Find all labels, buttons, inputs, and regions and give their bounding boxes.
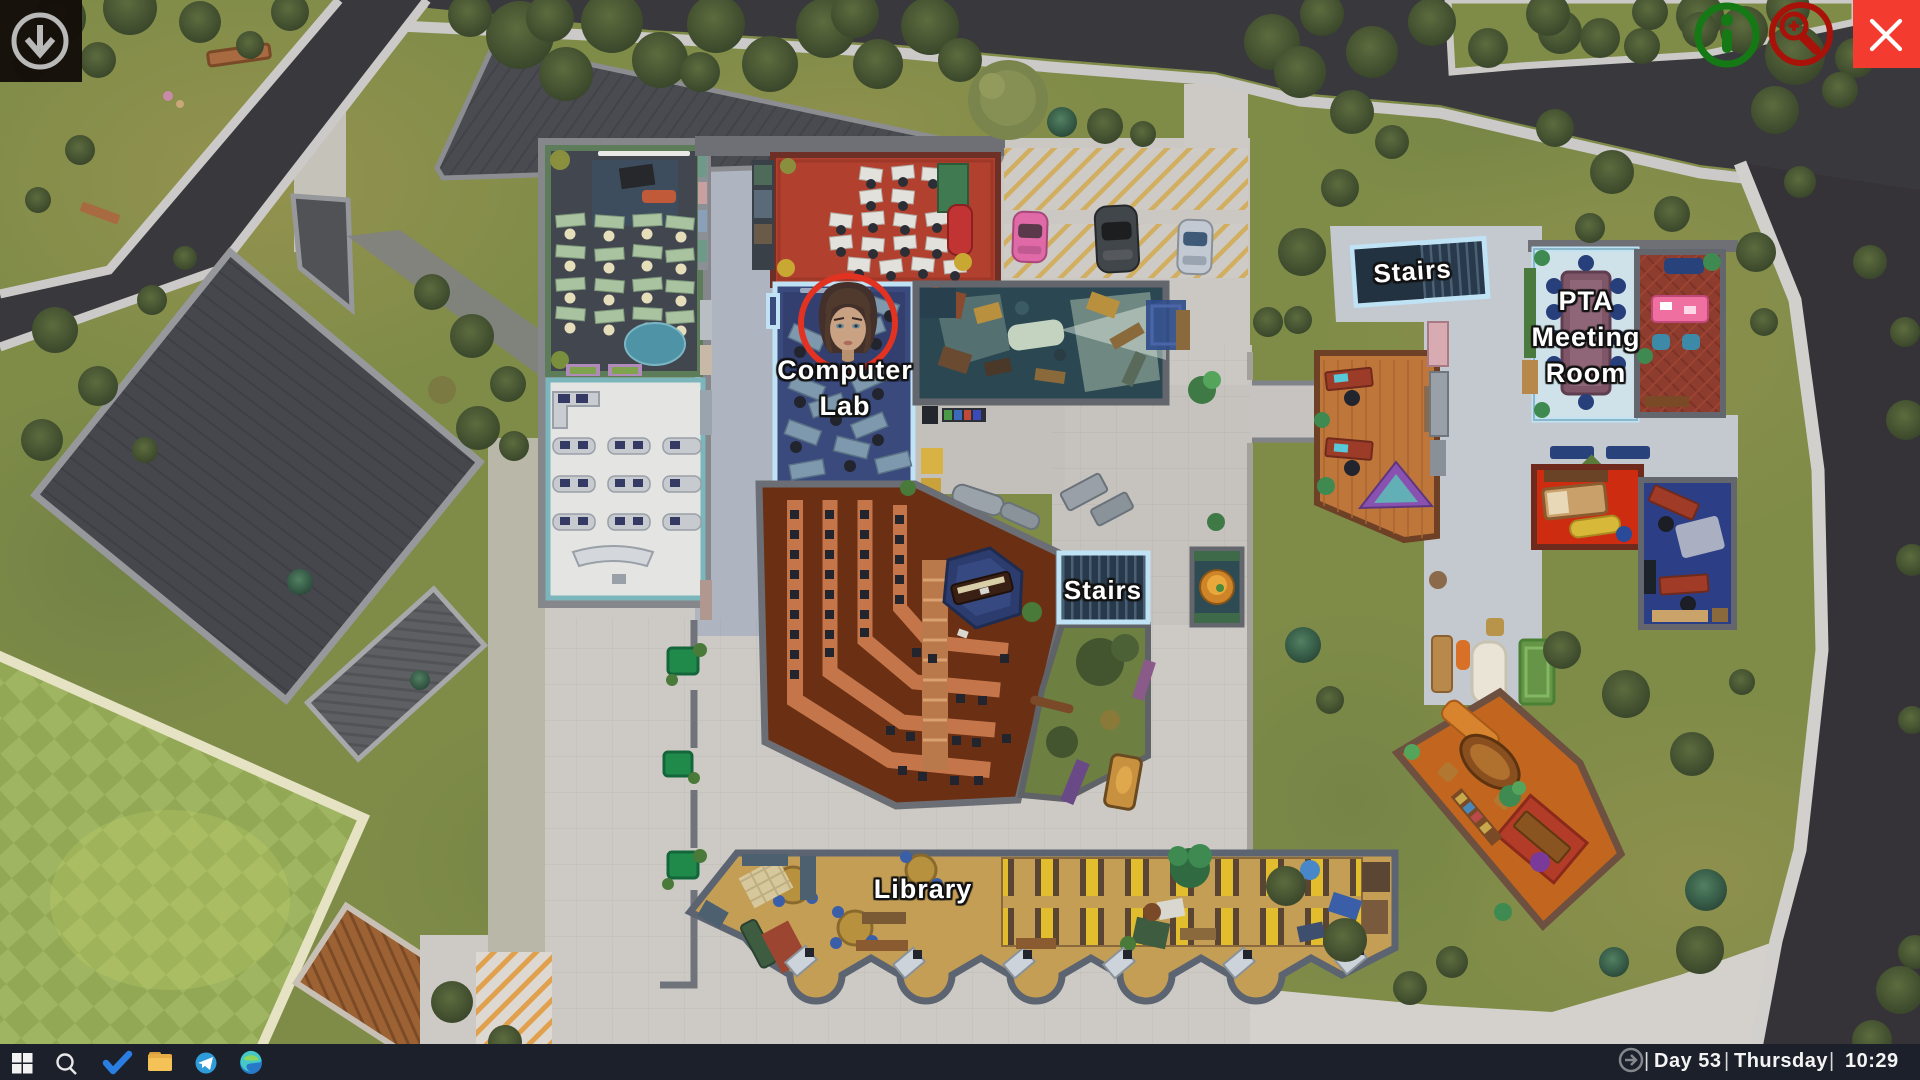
svg-text:|: | bbox=[1829, 1050, 1834, 1072]
svg-text:10:29: 10:29 bbox=[1845, 1050, 1899, 1072]
svg-text:|: | bbox=[1724, 1050, 1729, 1072]
svg-text:Thursday: Thursday bbox=[1734, 1050, 1828, 1072]
svg-text:|: | bbox=[1644, 1050, 1649, 1072]
svg-text:Day 53: Day 53 bbox=[1654, 1050, 1722, 1072]
